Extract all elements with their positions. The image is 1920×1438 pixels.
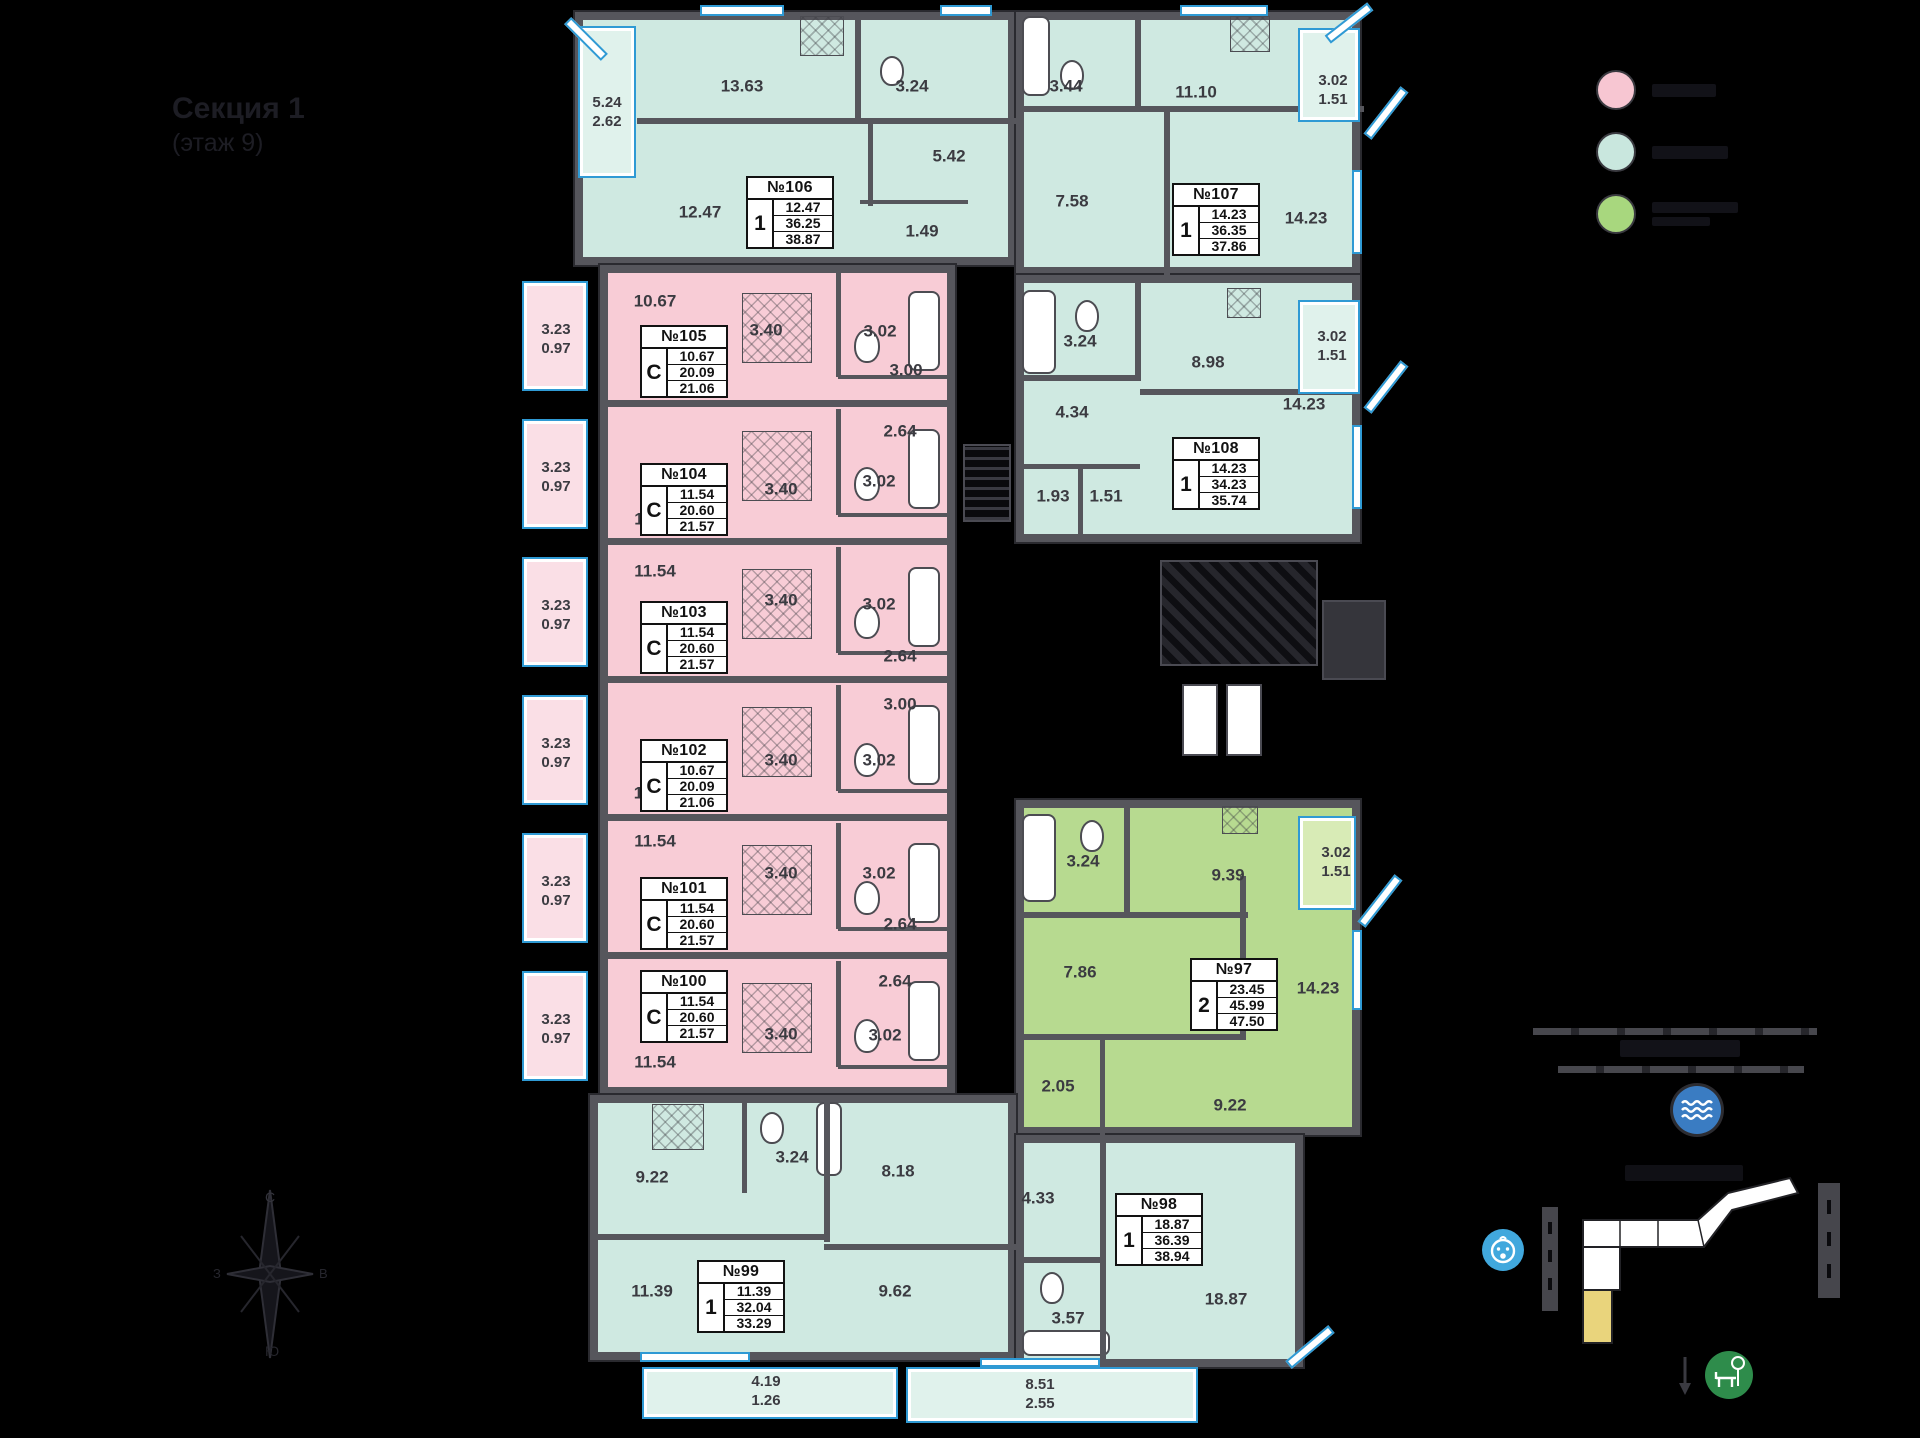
toilet xyxy=(854,881,880,915)
room-count-badge: С xyxy=(642,487,668,534)
legend-item-one-room[interactable] xyxy=(1596,132,1738,172)
apartment-info-106[interactable]: №106112.4736.2538.87 xyxy=(746,176,834,249)
room-area-label: 3.44 xyxy=(1049,77,1082,96)
room-area-label: 5.24 2.62 xyxy=(592,93,621,131)
kindergarten-icon xyxy=(1482,1229,1524,1271)
apartment-number: №99 xyxy=(699,1262,783,1284)
apartment-area: 20.60 xyxy=(668,640,726,656)
partition-wall xyxy=(860,200,968,204)
room-area-label: 14.23 xyxy=(1285,209,1328,228)
total-area: 37.86 xyxy=(1200,238,1258,254)
room-area-label: 3.40 xyxy=(749,321,782,340)
compass-south-label: Ю xyxy=(265,1343,279,1359)
apartment-number: №103 xyxy=(642,603,726,625)
total-area: 38.87 xyxy=(774,231,832,247)
partition-wall xyxy=(838,513,955,517)
legend xyxy=(1596,70,1738,256)
bay-window xyxy=(1364,360,1409,413)
room-area-label: 8.51 2.55 xyxy=(1025,1375,1054,1413)
apartment-info-103[interactable]: №103С11.5420.6021.57 xyxy=(640,601,728,674)
floor-plan-page: Секция 1 (этаж 9) xyxy=(0,0,1920,1438)
living-area: 11.54 xyxy=(668,901,726,916)
partition-wall xyxy=(1016,1034,1246,1040)
compass-west-label: З xyxy=(213,1266,221,1281)
partition-wall xyxy=(836,685,841,791)
room-area-label: 4.33 xyxy=(1021,1189,1054,1208)
bathtub xyxy=(908,981,940,1061)
apartment-number: №102 xyxy=(642,741,726,763)
bathtub xyxy=(1022,814,1056,902)
room-area-label: 3.23 0.97 xyxy=(541,320,570,358)
partition-wall xyxy=(1100,1135,1106,1367)
bathtub xyxy=(1022,16,1050,96)
window xyxy=(700,5,784,16)
room-area-label: 3.02 xyxy=(868,1026,901,1045)
floor-subtitle: (этаж 9) xyxy=(172,126,305,160)
apartment-number: №108 xyxy=(1174,439,1258,461)
room-area-label: 3.40 xyxy=(764,480,797,499)
room-area-label: 3.40 xyxy=(764,1025,797,1044)
bathtub xyxy=(1022,290,1056,374)
water-icon xyxy=(1673,1086,1721,1134)
toilet xyxy=(1080,820,1104,852)
kitchen-hatch xyxy=(800,16,844,56)
apartment-number: №107 xyxy=(1174,185,1258,207)
room-area-label: 2.64 xyxy=(878,972,911,991)
apartment-info-99[interactable]: №99111.3932.0433.29 xyxy=(697,1260,785,1333)
minimap-building-outline xyxy=(1583,1178,1798,1247)
apartment-info-107[interactable]: №107114.2336.3537.86 xyxy=(1172,183,1260,256)
bathtub xyxy=(908,567,940,647)
room-area-label: 3.40 xyxy=(764,751,797,770)
room-area-label: 11.54 xyxy=(634,1053,676,1072)
room-area-label: 3.02 xyxy=(863,322,896,341)
room-area-label: 11.54 xyxy=(634,832,676,851)
living-area: 10.67 xyxy=(668,763,726,778)
partition-wall xyxy=(1135,279,1141,381)
room-count-badge: С xyxy=(642,763,668,810)
room-area-label: 3.24 xyxy=(895,77,928,96)
partition-wall xyxy=(824,1244,1016,1250)
partition-wall xyxy=(1016,912,1248,918)
room-area-label: 14.23 xyxy=(1297,979,1340,998)
room-area-label: 5.42 xyxy=(932,147,965,166)
partition-wall xyxy=(836,271,841,377)
park-bench-icon xyxy=(1705,1351,1753,1399)
room-area-label: 3.00 xyxy=(883,695,916,714)
toilet xyxy=(1040,1272,1064,1304)
apartment-area: 32.04 xyxy=(725,1299,783,1315)
apartment-area: 20.09 xyxy=(668,364,726,380)
partition-wall xyxy=(590,1234,828,1240)
embankment-road xyxy=(1533,1028,1817,1074)
partition-wall xyxy=(868,124,873,206)
partition-wall xyxy=(1164,112,1170,277)
compass-icon: С Ю З В xyxy=(205,1188,335,1365)
room-area-label: 3.23 0.97 xyxy=(541,734,570,772)
room-count-badge: 1 xyxy=(1174,461,1200,508)
room-area-label: 3.24 xyxy=(1066,852,1099,871)
stairwell xyxy=(963,444,1011,522)
room-area-label: 9.39 xyxy=(1211,866,1244,885)
living-area: 11.39 xyxy=(725,1284,783,1299)
room-area-label: 3.23 0.97 xyxy=(541,596,570,634)
room-area-label: 1.93 xyxy=(1036,487,1069,506)
partition-wall xyxy=(836,823,841,929)
apartment-number: №98 xyxy=(1117,1195,1201,1217)
room-area-label: 3.23 0.97 xyxy=(541,458,570,496)
toilet xyxy=(760,1112,784,1144)
legend-item-studio[interactable] xyxy=(1596,70,1738,110)
apartment-info-102[interactable]: №102С10.6720.0921.06 xyxy=(640,739,728,812)
room-area-label: 3.02 1.51 xyxy=(1317,327,1346,365)
living-area: 14.23 xyxy=(1200,461,1258,476)
apartment-info-105[interactable]: №105С10.6720.0921.06 xyxy=(640,325,728,398)
compass-east-label: В xyxy=(319,1266,328,1281)
window xyxy=(940,5,992,16)
apartment-info-98[interactable]: №98118.8736.3938.94 xyxy=(1115,1193,1203,1266)
room-area-label: 14.23 xyxy=(1283,395,1326,414)
room-area-label: 3.02 xyxy=(862,864,895,883)
total-area: 21.06 xyxy=(668,794,726,810)
room-count-badge: С xyxy=(642,349,668,396)
apartment-info-100[interactable]: №100С11.5420.6021.57 xyxy=(640,970,728,1043)
kitchen-hatch xyxy=(652,1104,704,1150)
apartment-number: №105 xyxy=(642,327,726,349)
room-area-label: 1.49 xyxy=(905,222,938,241)
partition-wall xyxy=(1100,1040,1105,1135)
kitchen-hatch xyxy=(1222,806,1258,834)
kitchen-hatch xyxy=(1230,16,1270,52)
shaft-block xyxy=(1322,600,1386,680)
living-area: 10.67 xyxy=(668,349,726,364)
room-count-badge: С xyxy=(642,901,668,948)
partition-wall xyxy=(836,547,841,653)
partition-wall xyxy=(838,789,955,793)
minimap-street-bar xyxy=(1625,1165,1743,1181)
partition-wall xyxy=(1124,804,1130,916)
total-area: 21.57 xyxy=(668,656,726,672)
apartment-area: 34.23 xyxy=(1200,476,1258,492)
room-area-label: 3.02 xyxy=(862,472,895,491)
apartment-number: №106 xyxy=(748,178,832,200)
partition-wall xyxy=(1016,1257,1104,1263)
two-room-color-dot-icon xyxy=(1596,194,1636,234)
elevator-shaft xyxy=(1182,684,1218,756)
bathtub xyxy=(908,843,940,923)
partition-wall xyxy=(855,12,861,122)
partition-wall xyxy=(742,1095,747,1193)
bathtub xyxy=(908,705,940,785)
window xyxy=(1352,170,1362,254)
window xyxy=(1352,425,1362,509)
room-area-label: 9.22 xyxy=(1213,1096,1246,1115)
room-area-label: 3.00 xyxy=(889,361,922,380)
room-area-label: 2.64 xyxy=(883,647,916,666)
partition-wall xyxy=(1016,464,1140,469)
window xyxy=(1352,930,1362,1010)
legend-item-two-room[interactable] xyxy=(1596,194,1738,234)
living-area: 11.54 xyxy=(668,994,726,1009)
partition-wall xyxy=(836,409,841,515)
apartment-info-108[interactable]: №108114.2334.2335.74 xyxy=(1172,437,1260,510)
room-count-badge: 1 xyxy=(1174,207,1200,254)
room-count-badge: С xyxy=(642,625,668,672)
apartment-number: №100 xyxy=(642,972,726,994)
one-room-color-dot-icon xyxy=(1596,132,1636,172)
elevator-shaft xyxy=(1226,684,1262,756)
legend-label-bar xyxy=(1652,146,1728,159)
room-area-label: 3.40 xyxy=(764,591,797,610)
room-area-label: 3.02 1.51 xyxy=(1318,71,1347,109)
total-area: 21.57 xyxy=(668,518,726,534)
room-area-label: 12.47 xyxy=(679,203,722,222)
living-area: 11.54 xyxy=(668,487,726,502)
kitchen-hatch xyxy=(1227,288,1261,318)
living-area: 23.45 xyxy=(1218,982,1276,997)
room-count-badge: 1 xyxy=(1117,1217,1143,1264)
total-area: 21.57 xyxy=(668,932,726,948)
bathtub xyxy=(908,429,940,509)
room-area-label: 3.24 xyxy=(1063,332,1096,351)
window xyxy=(1180,5,1268,16)
partition-wall xyxy=(1016,375,1140,381)
room-area-label: 2.64 xyxy=(883,422,916,441)
partition-wall xyxy=(838,1065,955,1069)
apartment-number: №101 xyxy=(642,879,726,901)
window xyxy=(980,1358,1100,1367)
room-count-badge: С xyxy=(642,994,668,1041)
room-area-label: 11.54 xyxy=(634,562,676,581)
room-area-label: 1.51 xyxy=(1089,487,1122,506)
apartment-area: 20.09 xyxy=(668,778,726,794)
unit-divider-wall xyxy=(600,400,955,407)
total-area: 21.57 xyxy=(668,1025,726,1041)
total-area: 21.06 xyxy=(668,380,726,396)
apartment-number: №97 xyxy=(1192,960,1276,982)
room-area-label: 3.24 xyxy=(775,1148,808,1167)
room-area-label: 9.62 xyxy=(878,1282,911,1301)
room-area-label: 4.19 1.26 xyxy=(751,1372,780,1410)
room-count-badge: 2 xyxy=(1192,982,1218,1029)
section-title: Секция 1 xyxy=(172,92,305,126)
mini-map[interactable] xyxy=(1480,1150,1920,1438)
living-area: 14.23 xyxy=(1200,207,1258,222)
bathtub xyxy=(908,291,940,371)
room-area-label: 8.98 xyxy=(1191,353,1224,372)
unit-divider-wall xyxy=(600,538,955,545)
living-area: 18.87 xyxy=(1143,1217,1201,1232)
room-area-label: 3.02 xyxy=(862,595,895,614)
apartment-info-104[interactable]: №104С11.5420.6021.57 xyxy=(640,463,728,536)
room-area-label: 18.87 xyxy=(1205,1290,1248,1309)
room-area-label: 3.02 1.51 xyxy=(1321,843,1350,881)
living-area: 11.54 xyxy=(668,625,726,640)
room-area-label: 9.22 xyxy=(635,1168,668,1187)
partition-wall xyxy=(836,961,841,1067)
elevator-core-hatch xyxy=(1160,560,1318,666)
compass-north-label: С xyxy=(265,1189,275,1205)
room-area-label: 11.39 xyxy=(631,1282,673,1301)
studio-color-dot-icon xyxy=(1596,70,1636,110)
unit-divider-wall xyxy=(600,952,955,959)
total-area: 35.74 xyxy=(1200,492,1258,508)
room-area-label: 3.02 xyxy=(862,751,895,770)
total-area: 47.50 xyxy=(1218,1013,1276,1029)
street-name-bar xyxy=(1620,1040,1740,1057)
room-area-label: 11.10 xyxy=(1175,83,1217,102)
toilet xyxy=(1075,300,1099,332)
room-area-label: 8.18 xyxy=(881,1162,914,1181)
room-area-label: 3.40 xyxy=(764,864,797,883)
partition-wall xyxy=(637,118,1016,124)
minimap-building-section[interactable] xyxy=(1583,1247,1620,1290)
room-area-label: 7.86 xyxy=(1063,963,1096,982)
room-area-label: 7.58 xyxy=(1055,192,1088,211)
bay-window xyxy=(1364,86,1409,139)
window xyxy=(640,1352,750,1362)
legend-label-bar xyxy=(1652,202,1738,226)
apartment-info-101[interactable]: №101С11.5420.6021.57 xyxy=(640,877,728,950)
bay-window xyxy=(1358,874,1403,927)
partition-wall xyxy=(1135,12,1141,110)
room-area-label: 2.05 xyxy=(1041,1077,1074,1096)
bathtub xyxy=(1022,1330,1110,1356)
room-area-label: 10.67 xyxy=(634,292,677,311)
room-area-label: 3.23 0.97 xyxy=(541,872,570,910)
apartment-area: 20.60 xyxy=(668,502,726,518)
room-count-badge: 1 xyxy=(748,200,774,247)
legend-label-bar xyxy=(1652,84,1716,97)
partition-wall xyxy=(824,1095,830,1242)
apartment-area: 20.60 xyxy=(668,916,726,932)
apartment-number: №104 xyxy=(642,465,726,487)
unit-divider-wall xyxy=(600,676,955,683)
total-area: 38.94 xyxy=(1143,1248,1201,1264)
room-area-label: 3.57 xyxy=(1051,1309,1084,1328)
apartment-info-97[interactable]: №97223.4545.9947.50 xyxy=(1190,958,1278,1031)
apartment-area: 36.25 xyxy=(774,215,832,231)
page-title: Секция 1 (этаж 9) xyxy=(172,92,305,160)
total-area: 33.29 xyxy=(725,1315,783,1331)
apartment-area: 20.60 xyxy=(668,1009,726,1025)
room-area-label: 3.23 0.97 xyxy=(541,1010,570,1048)
room-area-label: 13.63 xyxy=(721,77,764,96)
unit-divider-wall xyxy=(600,814,955,821)
living-area: 12.47 xyxy=(774,200,832,215)
room-area-label: 4.34 xyxy=(1055,403,1088,422)
apartment-area: 36.39 xyxy=(1143,1232,1201,1248)
minimap-current-section[interactable] xyxy=(1583,1290,1612,1343)
partition-wall xyxy=(1078,468,1083,542)
apartment-area: 36.35 xyxy=(1200,222,1258,238)
room-count-badge: 1 xyxy=(699,1284,725,1331)
apartment-area: 45.99 xyxy=(1218,997,1276,1013)
room-area-label: 2.64 xyxy=(883,915,916,934)
